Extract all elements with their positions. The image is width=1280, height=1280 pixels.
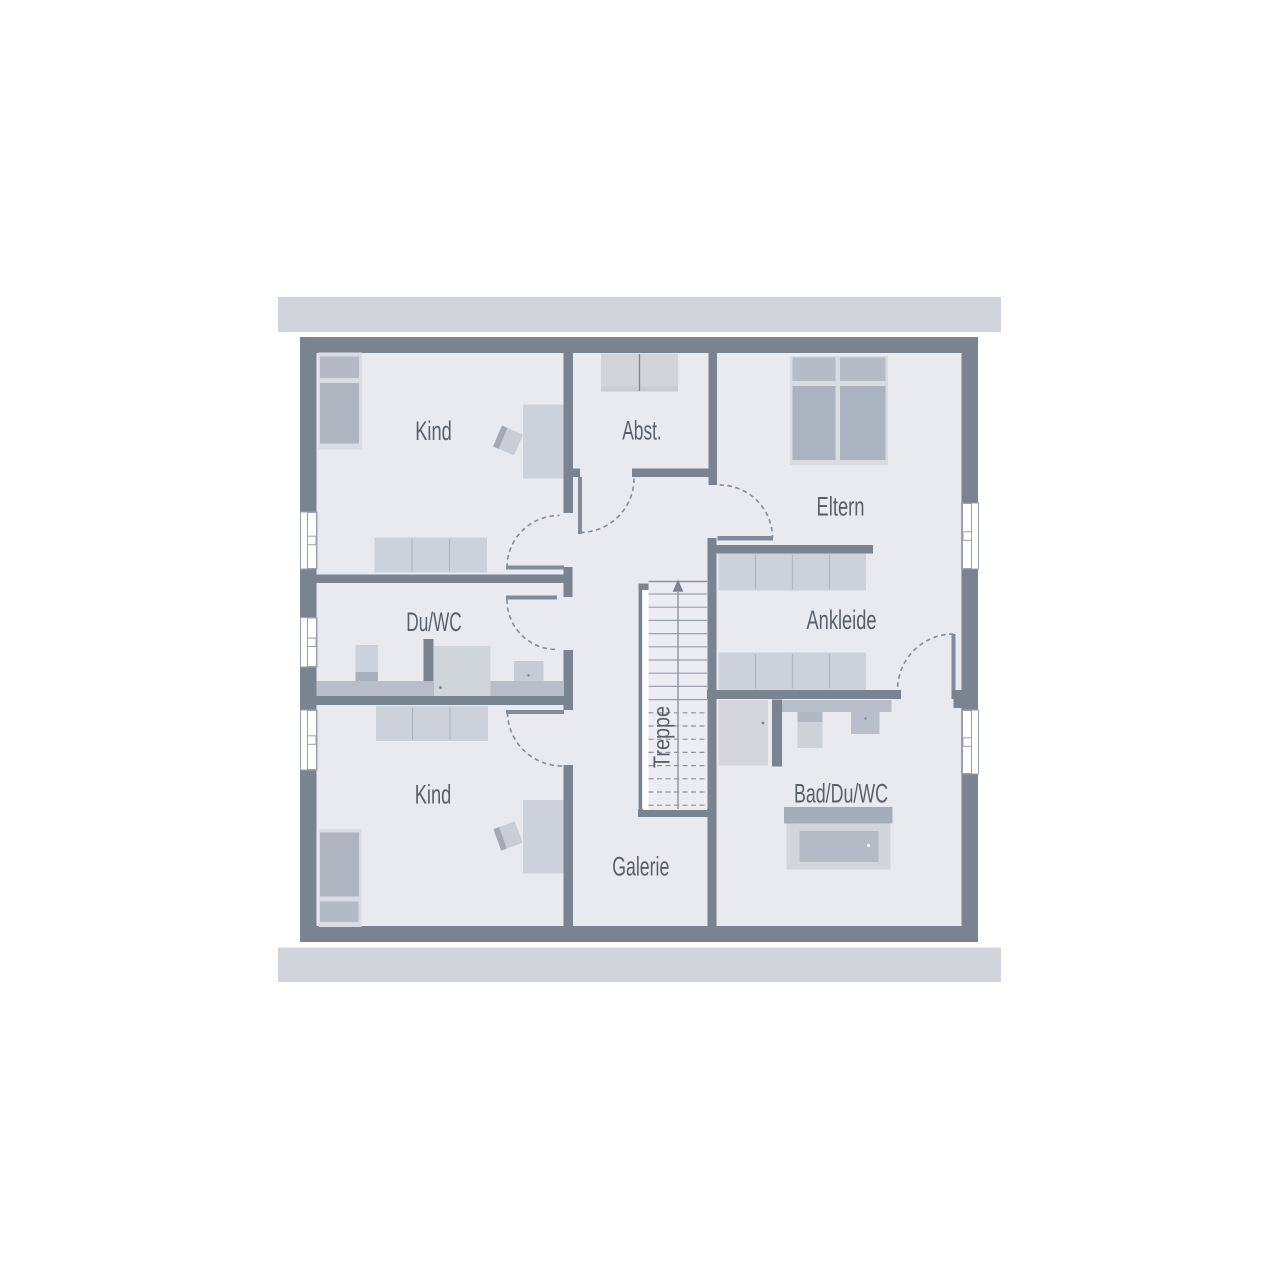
svg-text:Galerie: Galerie (612, 852, 669, 882)
svg-text:Du/WC: Du/WC (406, 607, 462, 637)
svg-text:Ankleide: Ankleide (807, 605, 877, 635)
svg-text:Treppe: Treppe (649, 706, 675, 768)
svg-text:Abst.: Abst. (622, 416, 662, 446)
svg-text:Eltern: Eltern (817, 492, 865, 522)
svg-text:Kind: Kind (415, 416, 452, 446)
svg-text:Bad/Du/WC: Bad/Du/WC (794, 779, 888, 809)
svg-text:Kind: Kind (415, 780, 452, 810)
